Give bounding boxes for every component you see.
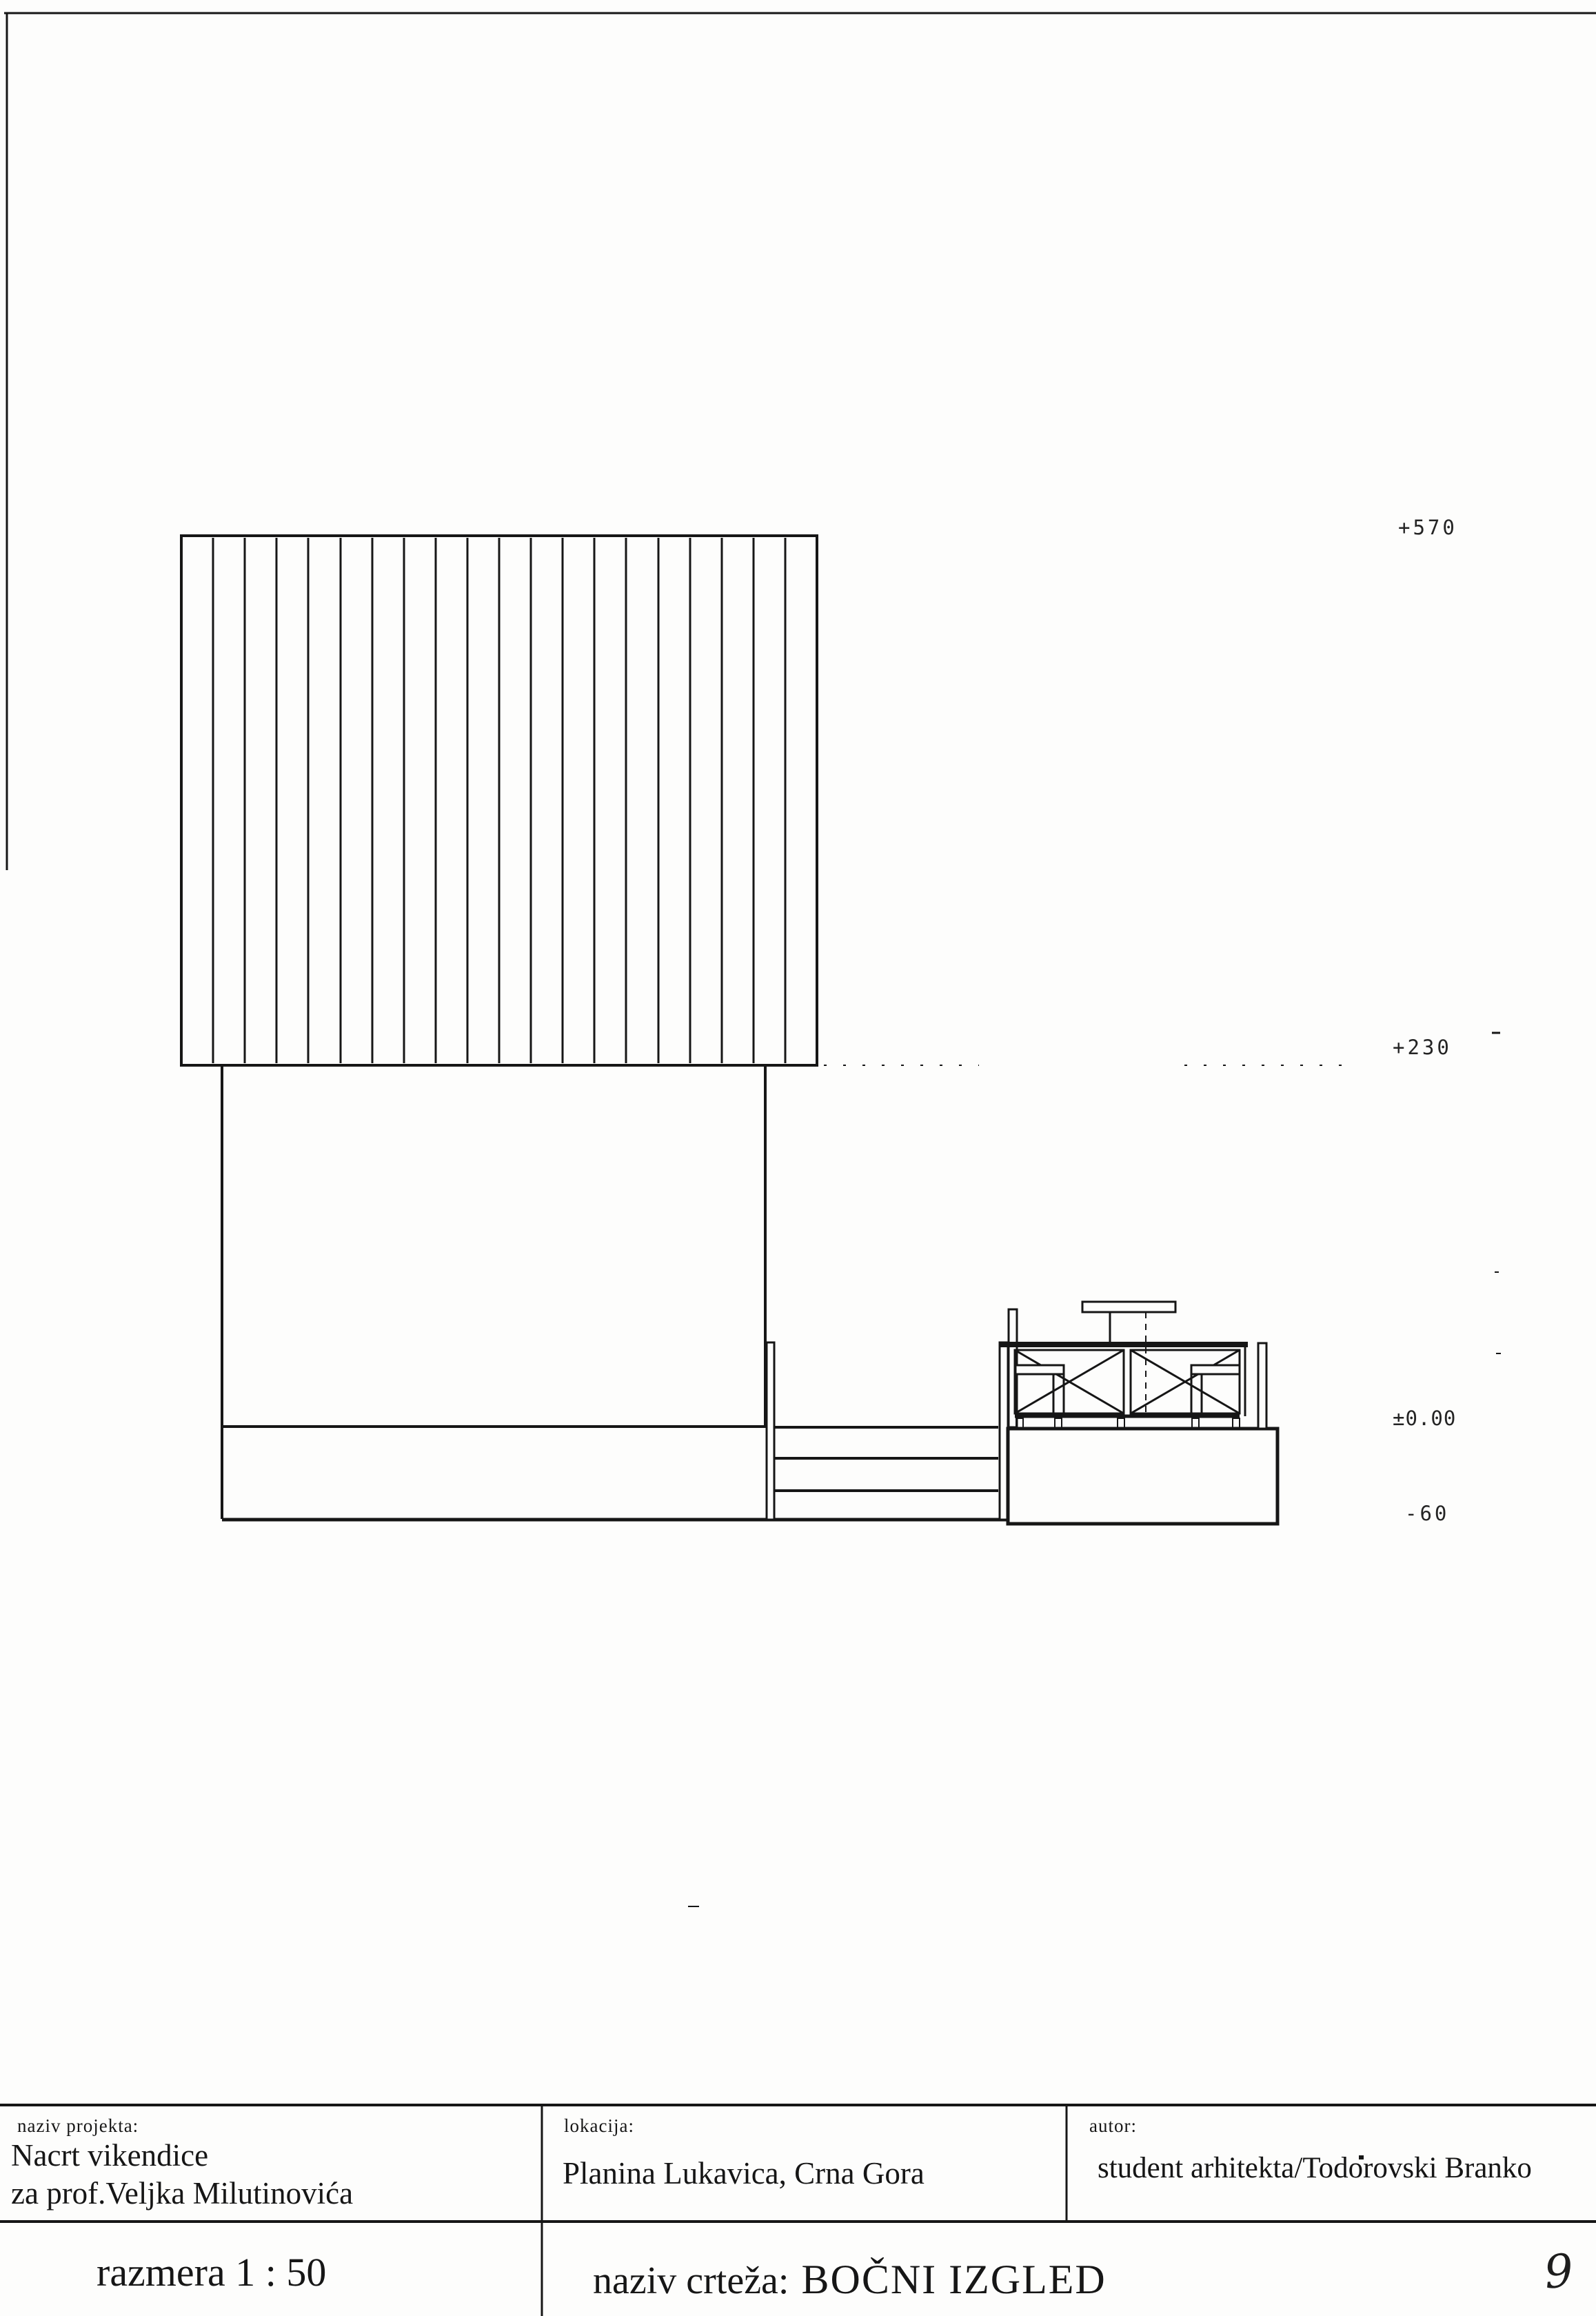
chair-right-seat (1191, 1365, 1240, 1374)
project-name-line2: za prof.Veljka Milutinovića (11, 2175, 353, 2211)
project-name-label: naziv projekta: (17, 2115, 139, 2137)
elevation-label-230: +230 (1393, 1036, 1452, 1059)
chair-right-leg (1191, 1374, 1202, 1413)
location-value: Planina Lukavica, Crna Gora (563, 2155, 925, 2191)
chair-left-seat (1016, 1365, 1064, 1374)
elevation-label-zero: ±0.00 (1393, 1407, 1456, 1430)
drawing-name-row: naziv crteža: BOČNI IZGLED (593, 2256, 1107, 2304)
table-top (1082, 1302, 1175, 1312)
scale-text: razmera 1 : 50 (97, 2249, 326, 2295)
stair-post-left (767, 1342, 774, 1520)
chair-left-leg (1053, 1374, 1064, 1413)
location-label: lokacija: (564, 2115, 634, 2137)
page-number: 9 (1542, 2244, 1576, 2299)
drawing-sheet: +570 +230 ±0.00 -60 naziv projekta: Nacr… (0, 0, 1596, 2316)
drawing-name-value: BOČNI IZGLED (801, 2257, 1106, 2302)
author-value: student arhitekta/Todorovski Branko (1098, 2151, 1532, 2185)
deck-platform (1008, 1429, 1277, 1524)
elevation-label-minus60: -60 (1405, 1502, 1449, 1525)
project-name-line1: Nacrt vikendice (11, 2137, 208, 2173)
author-label: autor: (1089, 2115, 1137, 2137)
drawing-name-label: naziv crteža: (593, 2259, 789, 2302)
elevation-label-570: +570 (1398, 516, 1457, 539)
side-elevation-drawing (0, 0, 1596, 2316)
deck-right-post (1258, 1343, 1266, 1429)
